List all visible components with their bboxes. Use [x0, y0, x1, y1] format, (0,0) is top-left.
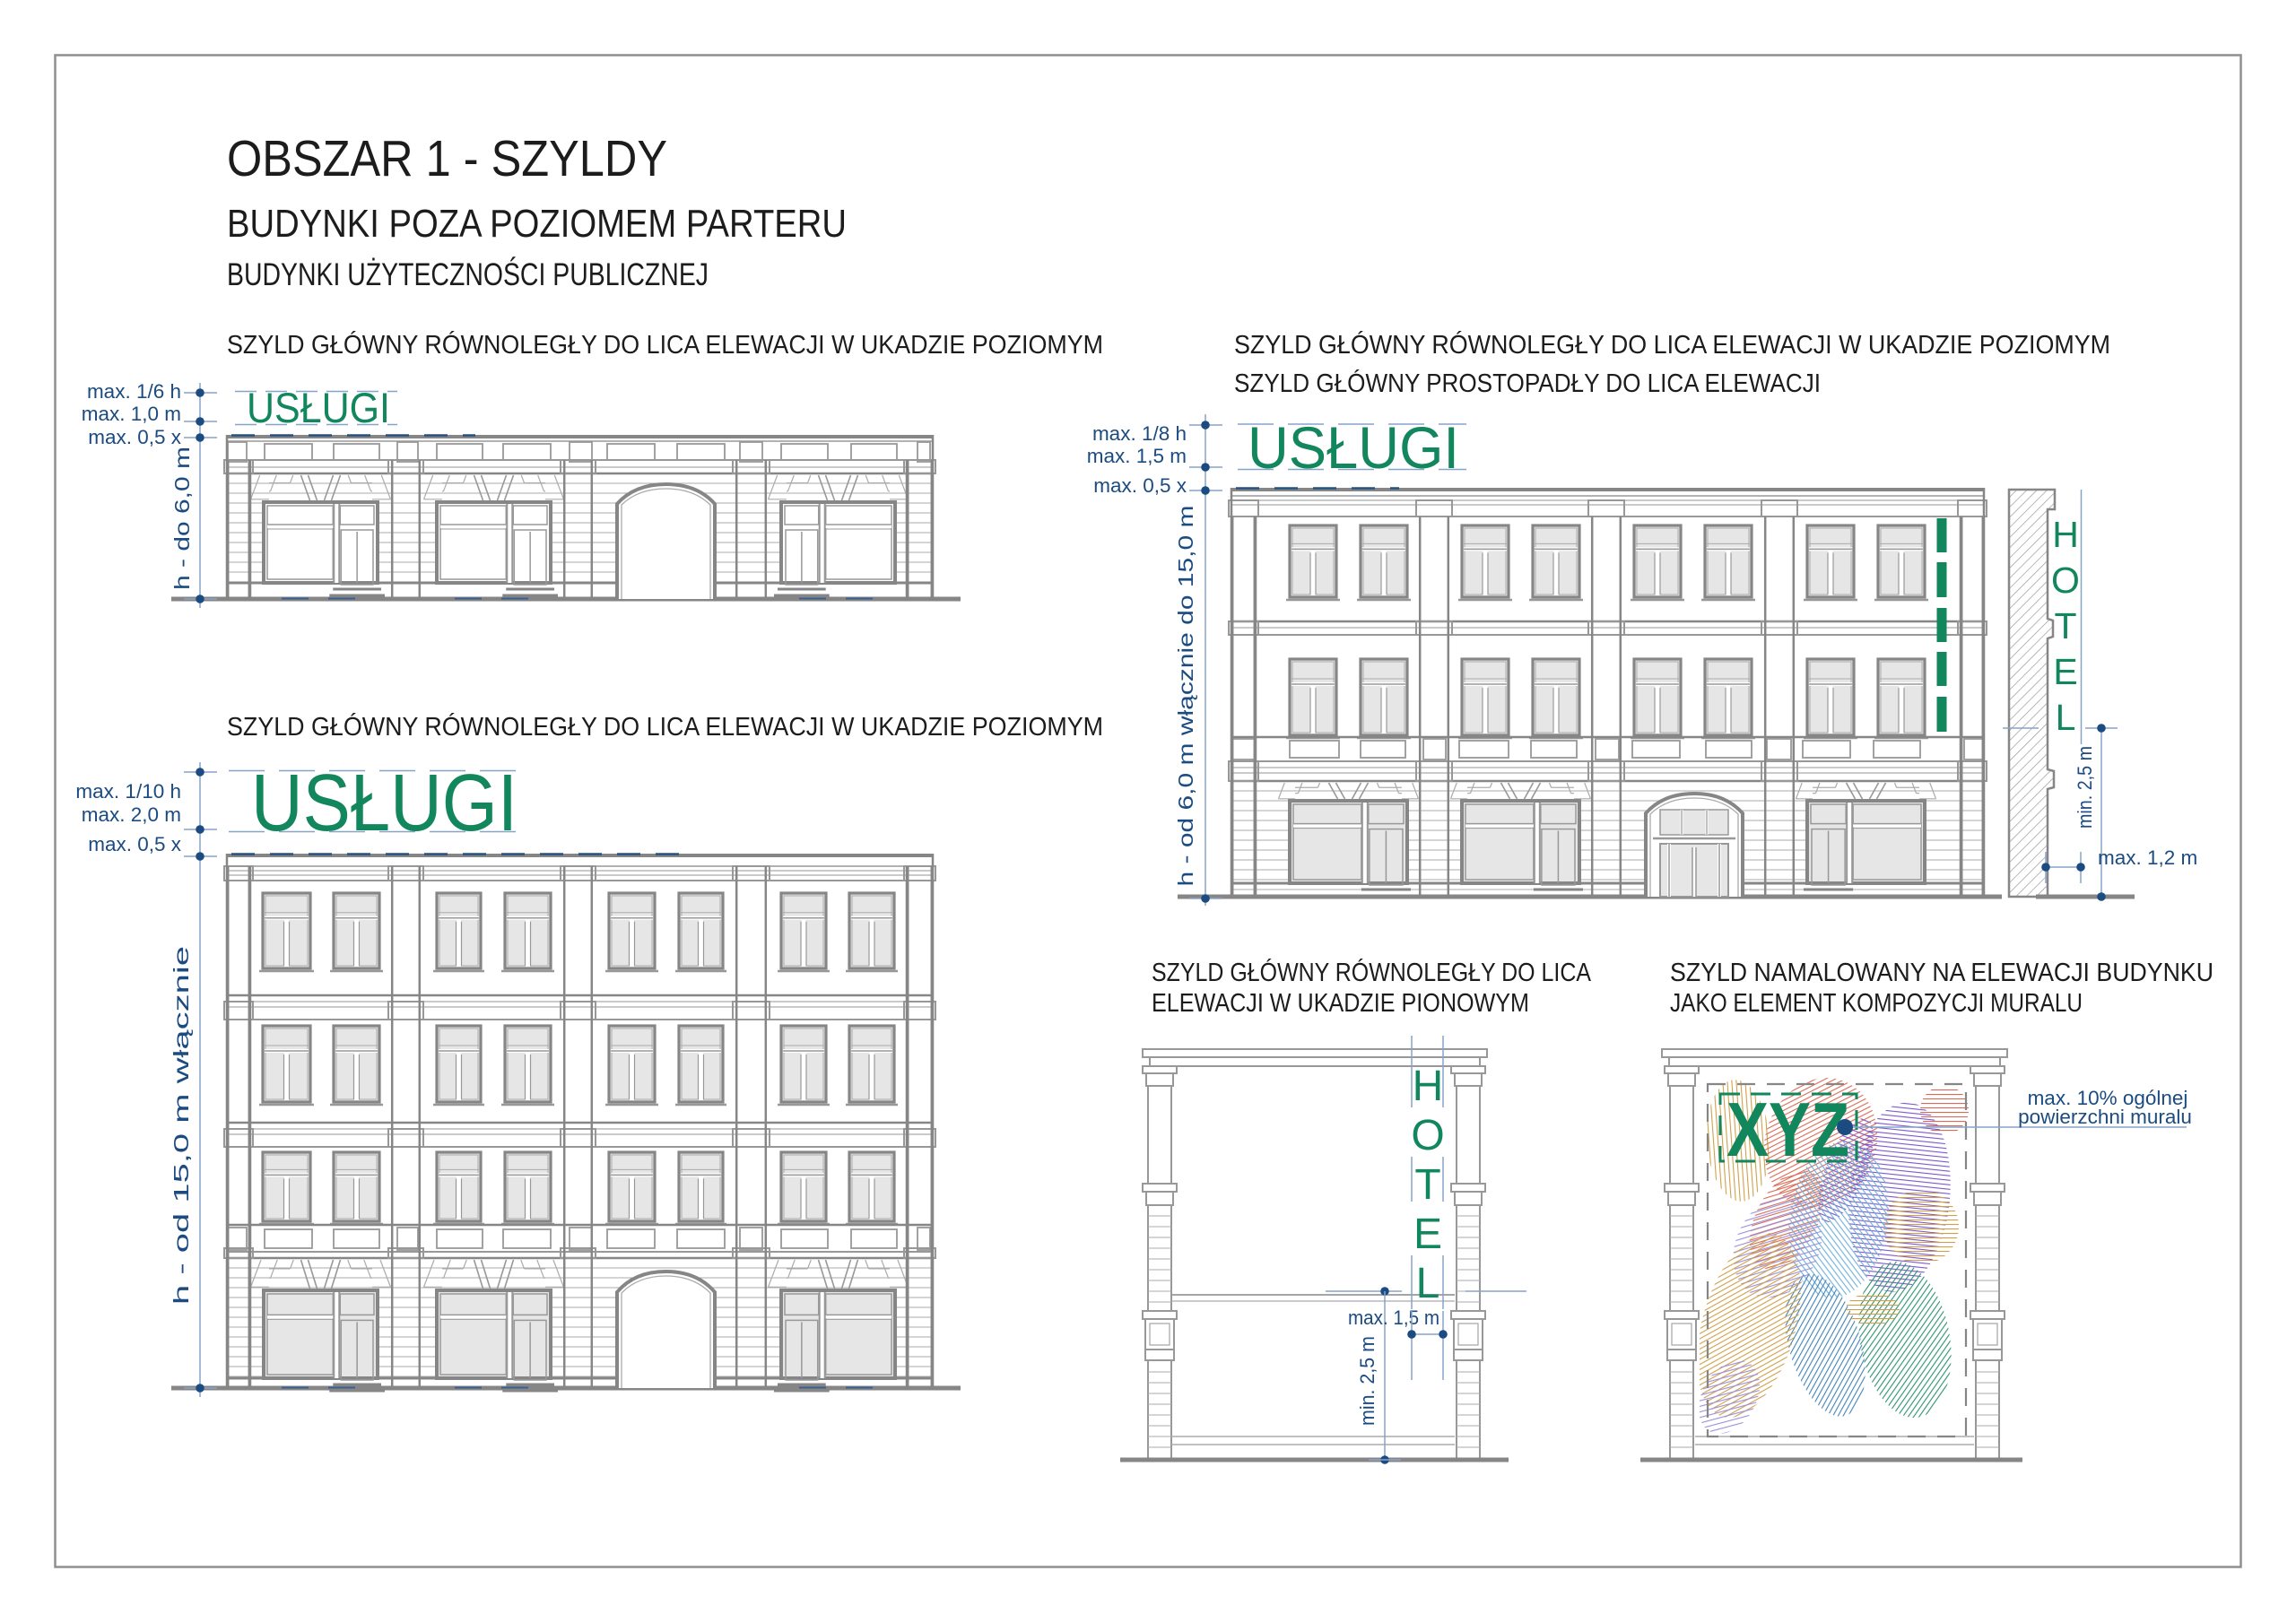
svg-text:SZYLD GŁÓWNY RÓWNOLEGŁY DO LIC: SZYLD GŁÓWNY RÓWNOLEGŁY DO LICA ELEWACJI… [227, 712, 1103, 742]
svg-text:h - od 6,0 m włącznie do 15,0: h - od 6,0 m włącznie do 15,0 m [1174, 506, 1197, 887]
svg-text:max. 1,2 m: max. 1,2 m [2098, 846, 2197, 869]
svg-text:O: O [1411, 1112, 1444, 1159]
svg-text:SZYLD NAMALOWANY NA ELEWACJI B: SZYLD NAMALOWANY NA ELEWACJI BUDYNKU [1670, 959, 2213, 987]
svg-text:max. 0,5 x: max. 0,5 x [1093, 474, 1187, 497]
svg-text:h - od 15,0 m włącznie: h - od 15,0 m włącznie [170, 946, 193, 1305]
svg-text:h - do 6,0 m: h - do 6,0 m [170, 447, 194, 590]
svg-text:L: L [1416, 1260, 1440, 1307]
svg-text:T: T [1414, 1161, 1440, 1209]
svg-text:powierzchni muralu: powierzchni muralu [2018, 1106, 2192, 1128]
svg-text:USŁUGI: USŁUGI [247, 384, 390, 431]
svg-text:T: T [2054, 605, 2076, 647]
svg-text:OBSZAR 1 - SZYLDY: OBSZAR 1 - SZYLDY [227, 130, 667, 187]
svg-text:O: O [2051, 560, 2080, 601]
svg-text:max. 0,5 x: max. 0,5 x [88, 833, 182, 855]
svg-text:max. 1/8 h: max. 1/8 h [1092, 422, 1187, 445]
svg-text:min. 2,5 m: min. 2,5 m [2074, 746, 2096, 829]
svg-text:USŁUGI: USŁUGI [251, 759, 517, 848]
svg-text:max. 0,5 x: max. 0,5 x [88, 426, 182, 448]
svg-text:L: L [2056, 697, 2076, 738]
svg-text:SZYLD GŁÓWNY RÓWNOLEGŁY DO LIC: SZYLD GŁÓWNY RÓWNOLEGŁY DO LICA [1152, 958, 1592, 987]
svg-text:SZYLD GŁÓWNY PROSTOPADŁY DO LI: SZYLD GŁÓWNY PROSTOPADŁY DO LICA ELEWACJ… [1234, 369, 1821, 398]
svg-text:XYZ: XYZ [1726, 1088, 1849, 1173]
svg-text:E: E [2053, 651, 2077, 692]
svg-text:H: H [2052, 514, 2079, 555]
svg-text:ELEWACJI W UKADZIE PIONOWYM: ELEWACJI W UKADZIE PIONOWYM [1152, 989, 1529, 1018]
svg-text:max. 1,5 m: max. 1,5 m [1087, 445, 1187, 467]
svg-text:max. 1/6 h: max. 1/6 h [87, 380, 181, 403]
svg-text:max. 1,5 m: max. 1,5 m [1348, 1306, 1439, 1329]
svg-text:H: H [1413, 1063, 1444, 1110]
svg-text:E: E [1413, 1211, 1442, 1258]
svg-text:max. 1/10 h: max. 1/10 h [75, 780, 181, 803]
svg-text:BUDYNKI POZA POZIOMEM PARTERU: BUDYNKI POZA POZIOMEM PARTERU [227, 202, 847, 246]
svg-text:max. 2,0 m: max. 2,0 m [82, 803, 181, 826]
svg-text:min. 2,5 m: min. 2,5 m [1356, 1336, 1378, 1426]
svg-text:max. 1,0 m: max. 1,0 m [82, 403, 181, 425]
svg-text:SZYLD GŁÓWNY RÓWNOLEGŁY DO LIC: SZYLD GŁÓWNY RÓWNOLEGŁY DO LICA ELEWACJI… [1234, 330, 2110, 360]
svg-text:SZYLD GŁÓWNY RÓWNOLEGŁY DO LIC: SZYLD GŁÓWNY RÓWNOLEGŁY DO LICA ELEWACJI… [227, 330, 1103, 360]
svg-text:BUDYNKI UŻYTECZNOŚCI PUBLICZNE: BUDYNKI UŻYTECZNOŚCI PUBLICZNEJ [227, 256, 709, 292]
svg-text:USŁUGI: USŁUGI [1248, 414, 1459, 481]
svg-text:JAKO ELEMENT KOMPOZYCJI MURALU: JAKO ELEMENT KOMPOZYCJI MURALU [1670, 989, 2083, 1018]
